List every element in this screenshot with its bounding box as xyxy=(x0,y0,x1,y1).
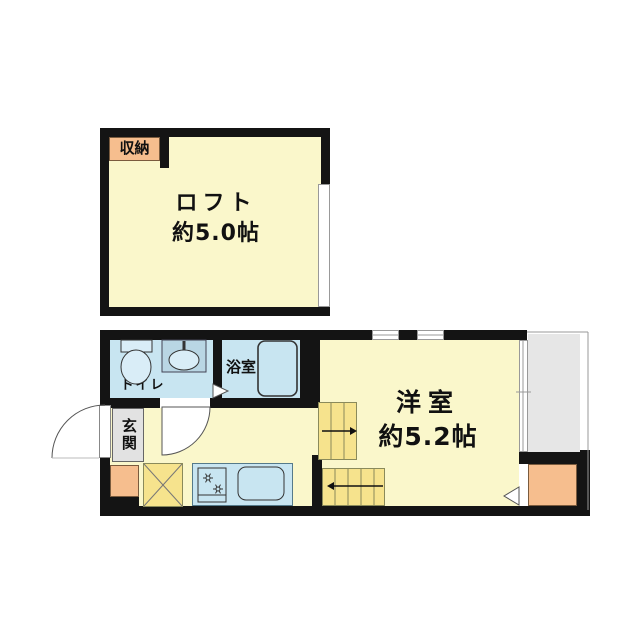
kitchen-counter xyxy=(192,463,293,506)
main-wall-bottom xyxy=(100,506,590,516)
main-wall-top xyxy=(100,330,527,340)
bath-room-wall xyxy=(300,340,320,403)
loft-area-label: 約5.0帖 xyxy=(110,222,322,245)
entrance-door-leaf xyxy=(99,405,111,458)
stairs-lower-flight xyxy=(322,468,385,506)
room-area-label: 約5.2帖 xyxy=(328,424,528,450)
plan-linework xyxy=(0,0,640,640)
entrance-storage-box xyxy=(110,465,139,497)
toilet-bath-wall xyxy=(213,340,222,399)
loft-wall-top xyxy=(100,128,330,137)
outdoor-storage-box xyxy=(528,464,577,506)
room-window-1 xyxy=(372,330,399,340)
entrance-label: 玄関 xyxy=(120,418,136,452)
loft-name-label: ロフト xyxy=(110,192,322,215)
loft-wall-right xyxy=(321,128,330,186)
hall-wall-left xyxy=(110,398,160,408)
floor-plan: 収納 ロフト 約5.0帖 玄関 トイレ 浴室 洋室 約5.2帖 xyxy=(0,0,640,640)
entrance-door-swing-arc xyxy=(52,405,105,458)
washer-space xyxy=(143,463,183,507)
toilet-label: トイレ xyxy=(112,379,174,393)
storage-door-opening xyxy=(519,464,528,506)
bath-label: 浴室 xyxy=(223,360,259,376)
closet-wall-stub xyxy=(160,128,169,168)
loft-wall-left xyxy=(100,128,109,316)
main-wall-right xyxy=(577,450,590,516)
hall-door-opening xyxy=(160,398,210,408)
entrance-area: 玄関 xyxy=(112,408,144,462)
main-wall-left-upper xyxy=(100,330,110,405)
room-window-2 xyxy=(417,330,444,340)
room-name-label: 洋室 xyxy=(328,390,528,416)
loft-wall-bottom xyxy=(100,307,330,316)
hall-wall-right xyxy=(210,398,320,408)
closet-label: 収納 xyxy=(109,141,160,157)
balcony xyxy=(528,334,580,452)
stair-wall-stub xyxy=(312,455,322,506)
